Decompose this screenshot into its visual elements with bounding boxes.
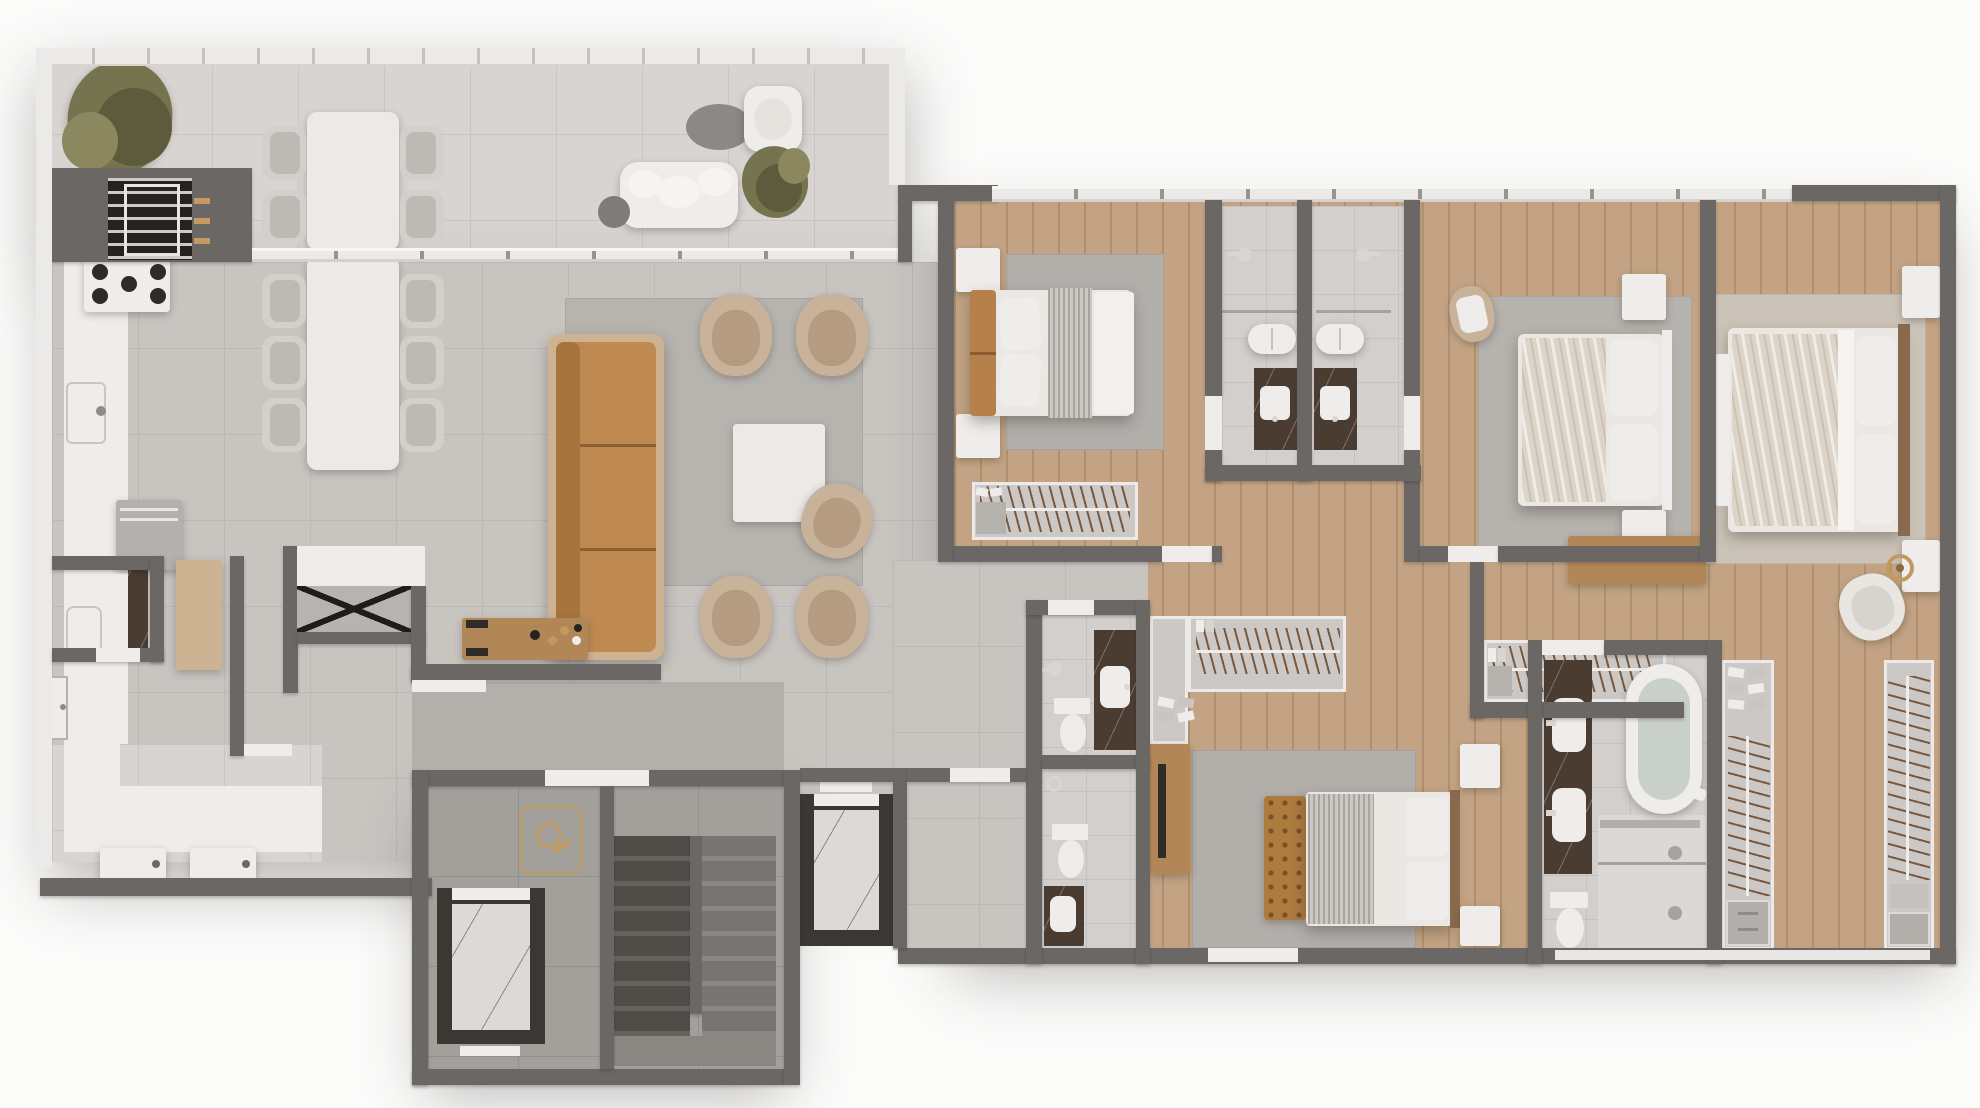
wall-rw-connector <box>898 199 912 262</box>
bedroom2-pillow <box>1610 424 1658 500</box>
bedroom2-blanket <box>1522 338 1606 502</box>
door-sill-vestibule <box>412 680 486 692</box>
wall-nook-south <box>1470 702 1684 718</box>
bedroom3-tv <box>1158 764 1166 858</box>
master-closet-left-hangers <box>1728 736 1770 896</box>
elevator-cabin <box>452 904 530 1030</box>
bbq-handle <box>194 218 210 224</box>
parapet-left <box>36 48 52 868</box>
wall-nook-west <box>1470 562 1484 718</box>
floor-lamp-bulb <box>1896 564 1904 572</box>
shower-drain <box>1668 906 1682 920</box>
bedroom2-closet-bottle <box>1498 648 1506 662</box>
elevator-sill <box>460 1046 520 1056</box>
master-toilet-bowl <box>1556 908 1584 948</box>
bedroom3-tv-panel <box>1150 744 1190 874</box>
shaft-top-ledge <box>297 546 425 586</box>
wall-bed1-south <box>954 546 1162 562</box>
outdoor-sofa-cushion-1 <box>628 170 662 198</box>
terrace-dining-table <box>307 112 399 250</box>
sofa-backrest <box>556 342 580 652</box>
master-closet-right-hangers <box>1888 676 1930 880</box>
wall-rw-top-left <box>898 185 998 201</box>
wall-console <box>411 664 661 680</box>
master-pillow <box>1856 336 1896 426</box>
bath2-glass-screen <box>1316 310 1391 313</box>
powder-toilet-tank <box>88 574 128 590</box>
wall-corridor-a <box>1420 546 1448 562</box>
bath4-toilet-bowl <box>1058 840 1084 878</box>
outdoor-side-table <box>598 196 630 228</box>
armchair-seat <box>808 590 856 646</box>
elevator-cabin <box>814 810 879 930</box>
bedroom3-pillow <box>1406 862 1448 920</box>
washer-knob <box>242 860 250 868</box>
bedroom1-pillow <box>999 353 1042 407</box>
dining-chair-seat <box>406 280 436 322</box>
wall-bench <box>230 556 244 756</box>
console-decor <box>574 624 582 632</box>
bath2-toilet-seam <box>1339 328 1341 350</box>
washer-knob <box>152 860 160 868</box>
master-nightstand <box>1902 266 1940 318</box>
bedroom1-throw-blanket <box>1048 288 1092 418</box>
elevator-door <box>814 794 879 806</box>
wall-mbath-top <box>1604 640 1707 655</box>
wall-mbath-west <box>1528 640 1542 964</box>
bath4-sink <box>1050 896 1076 932</box>
dining-chair-seat <box>270 342 300 384</box>
master-closet-right-rail <box>1906 676 1909 880</box>
master-duvet-fold <box>1838 330 1854 530</box>
closet-shoe <box>1748 699 1765 709</box>
console-decor <box>572 636 581 645</box>
bath4-toilet-tank <box>1052 824 1088 840</box>
bedroom3-pillow <box>1406 798 1448 856</box>
wall-bed1-south-b <box>1212 546 1222 562</box>
dining-chair-seat <box>270 404 300 446</box>
door-sill-bed2 <box>1448 546 1498 562</box>
bedroom1-pillow <box>998 297 1042 352</box>
lobby-emblem-ring <box>536 822 562 848</box>
bedroom2-pillow <box>1610 340 1658 416</box>
bath1-shower-arm <box>1228 252 1240 256</box>
laundry-counter-corner <box>64 744 120 786</box>
bath3-toilet-bowl <box>1060 714 1086 752</box>
bedroom2-headboard <box>1662 330 1672 510</box>
console-tray <box>466 620 488 628</box>
sofa-cushion-line <box>580 444 656 447</box>
dining-chair-seat <box>406 342 436 384</box>
stair-divider-wall <box>690 836 702 1014</box>
bedroom1-closet-box <box>976 502 1006 534</box>
bath3-faucet <box>1124 684 1130 690</box>
closet-shoe <box>1728 683 1745 693</box>
bedroom3-closet-rail <box>1196 650 1340 653</box>
bath3-toilet-tank <box>1054 698 1090 714</box>
bedroom1-closet-shoe <box>990 487 1003 497</box>
master-sink <box>1552 788 1586 842</box>
console-decor <box>530 630 540 640</box>
closet-shoe <box>1748 667 1765 678</box>
burner <box>92 288 108 304</box>
bedroom3-foot-bench <box>1264 796 1306 920</box>
wall-rw-top-right <box>1792 185 1956 201</box>
bath4-towel-ring <box>1046 776 1062 792</box>
bath1-faucet <box>1272 416 1278 422</box>
stair-flight-down <box>614 836 690 1036</box>
closet-bottle <box>1196 620 1204 632</box>
sofa-cushion-line <box>580 548 656 551</box>
closet-bottle <box>1206 620 1214 632</box>
door-sill-powder <box>96 648 140 662</box>
wall-smallbaths-divider <box>1042 755 1150 769</box>
master-toilet-tank <box>1550 892 1588 908</box>
bathtub-water <box>1638 678 1690 800</box>
console-decor <box>548 636 557 645</box>
outdoor-armchair-cushion <box>754 98 792 140</box>
wall-bed2-master <box>1700 200 1716 562</box>
shower-glass <box>1598 862 1706 865</box>
door-sill-laundry <box>244 744 292 756</box>
wall-baths-middle <box>1297 200 1312 481</box>
wall-annex-bottom <box>412 1069 784 1085</box>
wall-annex-right <box>784 770 800 1085</box>
dining-table <box>307 256 399 470</box>
burner <box>150 288 166 304</box>
window-terrace <box>252 248 905 262</box>
terrace-chair-seat <box>270 132 300 174</box>
bbq-handle <box>194 238 210 244</box>
wall-powder-east <box>150 556 164 662</box>
bedroom1-headboard-split <box>970 352 996 355</box>
terrace-chair-seat <box>406 132 436 174</box>
fridge-door-line <box>120 518 178 521</box>
master-closet-right-box <box>1890 884 1928 908</box>
armchair-seat <box>712 310 760 366</box>
terrace-plant-small-leaf <box>778 148 810 184</box>
elevator-door <box>452 888 530 900</box>
master-pillow <box>1856 434 1896 524</box>
door-sill-bath3 <box>1048 600 1094 615</box>
console-decor <box>560 626 569 635</box>
terrace-plant-large-leaf <box>62 112 118 170</box>
elevator-sill <box>820 782 872 792</box>
wall-shaft-south <box>297 632 425 644</box>
wall-annex-left <box>412 770 428 1085</box>
drawer-handle <box>1738 912 1758 915</box>
wall-bath1-west <box>1205 200 1222 396</box>
console-tray <box>466 648 488 656</box>
bath2-shower-arm <box>1368 252 1380 256</box>
wall-rw-right <box>1940 185 1956 964</box>
door-sill-entry <box>950 768 1010 782</box>
dining-chair-seat <box>270 280 300 322</box>
bath1-sink <box>1260 386 1290 420</box>
armchair-seat <box>712 590 760 646</box>
shower-drain <box>1668 846 1682 860</box>
bedroom3-throw-blanket <box>1308 794 1374 924</box>
bedroom3-nightstand <box>1460 906 1500 946</box>
entry-bench <box>176 560 222 670</box>
closet-shoe <box>1728 699 1745 710</box>
bedroom3-closet-shoes <box>1150 616 1188 744</box>
wall-stairwell-west <box>600 786 614 1069</box>
parapet-terrace-right <box>889 48 905 185</box>
door-sill-mbath <box>1542 640 1604 655</box>
master-faucet <box>1546 720 1556 726</box>
stair-landing <box>614 1036 776 1066</box>
master-closet-left-drawers <box>1726 900 1770 946</box>
wall-smallbaths-west <box>1026 600 1042 964</box>
wall-bath2-east <box>1404 200 1420 396</box>
wall-entry-west <box>800 768 907 782</box>
wall-mbath-east <box>1707 640 1722 964</box>
wall-powder-top <box>52 556 164 570</box>
shower-floor <box>1598 815 1706 948</box>
bedroom2-nightstand <box>1622 274 1666 320</box>
drawer-handle <box>1738 928 1758 931</box>
outdoor-sofa-cushion-2 <box>658 176 700 208</box>
door-sill-bed1 <box>1162 546 1212 562</box>
terrace-chair-seat <box>406 196 436 238</box>
wall-lw-bottom <box>40 878 432 896</box>
wall-corridor-b <box>1498 546 1700 562</box>
wall-smallbaths-east <box>1136 600 1150 964</box>
burner <box>92 264 108 280</box>
laundry-counter <box>64 786 322 852</box>
bath1-glass-screen <box>1222 310 1297 313</box>
wall-shaft-west <box>283 546 298 693</box>
bath-shelf <box>1600 820 1700 828</box>
bedroom3-nightstand <box>1460 744 1500 788</box>
wall-elev2-side <box>893 782 907 948</box>
bath2-sink <box>1320 386 1350 420</box>
window-bedrooms <box>992 186 1792 202</box>
terrace-floor-spot <box>686 104 752 150</box>
bath3-shower-arm <box>1042 668 1052 672</box>
terrace-chair-seat <box>270 196 300 238</box>
powder-sink <box>66 606 102 654</box>
kitchen-faucet <box>96 406 106 416</box>
bbq-grill-frame <box>124 184 180 256</box>
master-closet-right-drawers <box>1888 912 1930 946</box>
burner <box>150 264 166 280</box>
door-sill-stairs <box>545 770 649 786</box>
dining-chair-seat <box>406 404 436 446</box>
bedroom2-closet-box <box>1488 666 1512 696</box>
bath2-faucet <box>1332 416 1338 422</box>
wall-living-bed1 <box>938 200 954 562</box>
fridge-door-line <box>120 508 178 511</box>
bedroom1-nightstand <box>956 414 1000 458</box>
sill-rw-bottom <box>1555 950 1930 960</box>
master-blanket <box>1732 334 1838 526</box>
burner <box>121 276 137 292</box>
bedroom1-nightstand <box>956 248 1000 292</box>
bbq-handle <box>194 198 210 204</box>
door-bath2 <box>1404 396 1420 450</box>
bedroom1-duvet <box>1094 292 1134 414</box>
master-faucet <box>1546 810 1556 816</box>
duct-shaft-xbrace <box>297 586 411 632</box>
master-tv-console <box>1716 354 1730 506</box>
door-bath1 <box>1205 396 1222 450</box>
outdoor-sofa-cushion-3 <box>698 168 732 196</box>
floor-plan-canvas <box>0 0 1980 1108</box>
bath1-toilet-seam <box>1271 328 1273 350</box>
bedroom3-headboard <box>1450 790 1460 928</box>
service-door-handle <box>60 704 66 710</box>
stair-flight-up <box>702 836 776 1036</box>
master-closet-left-rail <box>1746 736 1749 896</box>
bedroom2-closet-bottle <box>1488 648 1496 662</box>
bath1-shower-head <box>1238 248 1252 262</box>
door-sill-bed3 <box>1208 948 1298 962</box>
parapet-top <box>40 48 905 66</box>
armchair-seat <box>808 310 856 366</box>
master-headboard <box>1898 324 1910 536</box>
wall-baths-south <box>1205 465 1421 481</box>
